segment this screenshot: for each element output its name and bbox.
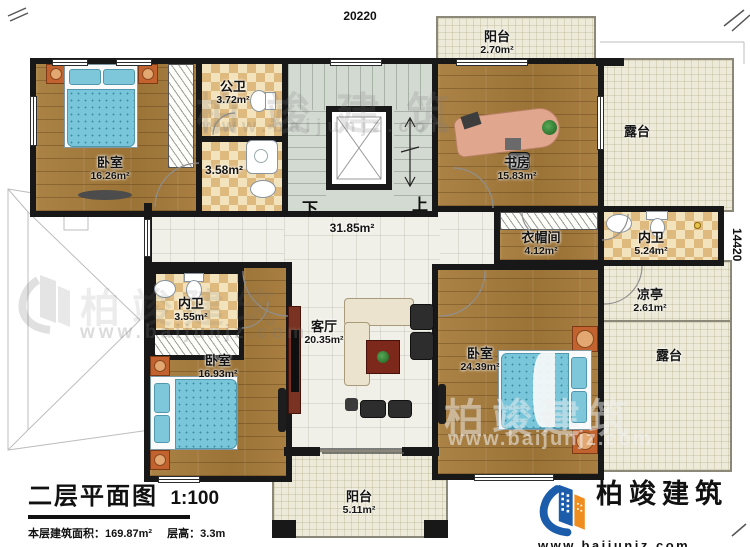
label-study: 书房15.83m² [497,156,536,182]
floor-height-value: 3.3m [200,528,225,540]
label-bath-public: 公卫3.72m² [216,80,249,106]
mattress [67,89,135,147]
pillow [571,357,587,389]
double-bed [150,376,238,450]
shower [246,140,278,174]
pillow [154,383,170,413]
armchair [410,304,434,330]
elevator-shaft [326,106,392,190]
pillow [103,69,135,85]
nightstand [46,64,66,84]
stair-treads-left [288,110,326,196]
mattress [175,379,237,449]
wall-lamp-icon [694,222,701,229]
dimension-right-height: 14420 [730,228,744,261]
sink [250,180,276,198]
sink [606,214,632,233]
label-bedroom-bottom-right: 卧室24.39m² [460,347,499,373]
label-hall-area: 31.85m² [330,222,375,235]
stair-treads-top [288,64,432,110]
stair-up-label: 上 [412,191,428,215]
wall-tv-icon [278,388,286,432]
monitor-icon [505,138,521,150]
double-bed [64,64,138,148]
armchair [388,400,412,418]
sink [154,280,176,298]
armchair [410,332,434,360]
label-terrace-right: 露台 [656,349,682,363]
armchair [360,400,386,418]
label-terrace-top-right: 露台 [624,125,650,139]
nightstand [138,64,158,84]
title-underline [28,515,190,519]
label-bedroom-bottom-left: 卧室16.93m² [198,354,237,380]
label-pavilion: 凉亭2.61m² [633,288,666,314]
tv-icon [291,330,299,392]
room-terrace-right [600,320,732,472]
scale-label: 1:100 [170,488,219,509]
wardrobe-strip [500,212,598,230]
side-table [345,398,358,411]
title-block: 二层平面图 1:100 本层建筑面积：169.87m² 层高：3.3m [28,476,288,541]
stair-treads-right [394,110,432,196]
bed-sheet [533,353,555,427]
double-bed [498,350,592,430]
nightstand-lamp-icon [142,68,154,80]
room-terrace-top-right [598,58,734,212]
wall-living-bottom-right [402,447,439,456]
stair-down-label: 下 [302,195,318,219]
wall-tv-icon [438,384,446,424]
label-bath-left: 内卫3.55m² [174,297,207,323]
window [52,59,88,66]
label-bedroom-top-left: 卧室16.26m² [90,156,129,182]
brand-logo-icon [538,480,590,538]
balcony-post-right [424,520,448,538]
label-bath-shower: 3.58m² [205,164,243,177]
pillow [154,415,170,443]
elevator-x-icon [332,112,386,184]
window [144,219,151,257]
label-balcony-bottom: 阳台5.11m² [343,490,376,516]
label-bath-right: 内卫5.24m² [634,231,667,257]
floor-area-label: 本层建筑面积： [28,528,105,540]
wall-living-bottom-left [284,447,320,456]
floor-plan-page: 卧室16.26m² 公卫3.72m² 3.58m² 书房15.83m² 阳台2.… [0,0,750,547]
plant [542,120,557,135]
floor-height-label: 层高： [167,528,200,540]
pillow [69,69,101,85]
nightstand [572,428,598,454]
nightstand-lamp-icon [576,432,594,450]
window [116,59,152,66]
nightstand [150,356,170,376]
toilet-tank [265,92,276,110]
label-balcony-top: 阳台2.70m² [480,30,513,56]
window [330,59,382,66]
label-living: 客厅20.35m² [304,320,343,346]
brand-block: 柏竣建筑 www.baijunjz.com [538,480,743,547]
page-title: 二层平面图 [28,483,158,510]
plant [377,351,389,363]
watermark-logo-icon [16,270,76,336]
nightstand-lamp-icon [154,454,166,466]
dimension-top-width: 20220 [343,9,376,23]
nightstand-lamp-icon [50,68,62,80]
window [30,96,37,146]
nightstand [572,326,598,352]
nightstand [150,450,170,470]
wall-terrace-top [596,58,624,66]
balcony-door-threshold [456,59,528,66]
wardrobe-strip [168,64,194,168]
label-closet: 衣帽间4.12m² [521,231,560,257]
pillow [571,391,587,423]
window [597,96,604,150]
nightstand-lamp-icon [576,330,594,348]
floor-area-value: 169.87m² [105,528,152,540]
shower-drain-icon [254,149,268,163]
tv-console [78,190,132,200]
nightstand-lamp-icon [154,360,166,372]
